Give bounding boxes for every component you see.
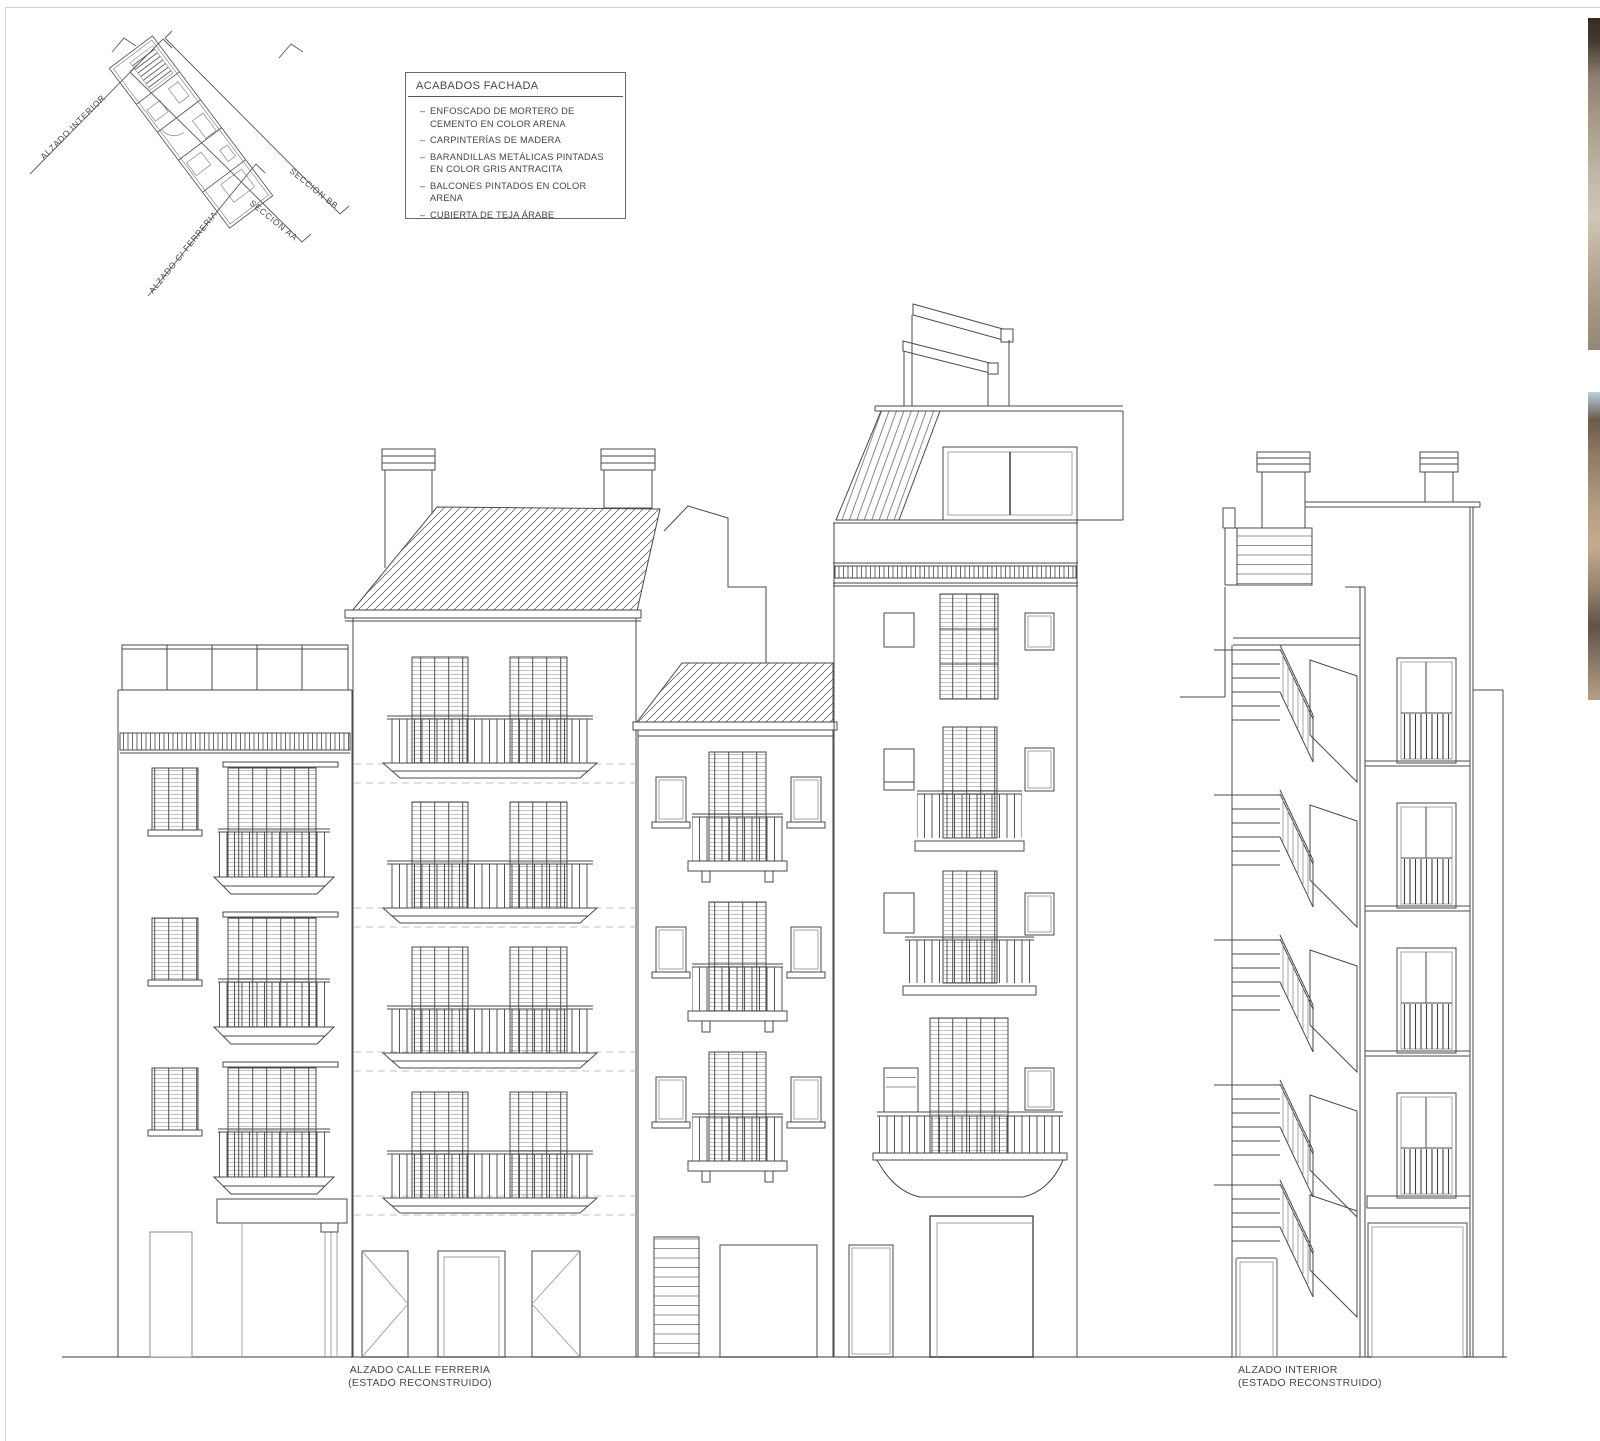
b4-cornice (833, 520, 1123, 586)
b4-floor-row (884, 871, 1054, 995)
b5-parapet-step (1223, 508, 1237, 528)
b2-floor-row (383, 1092, 597, 1213)
legend-item: BALCONES PINTADOS EN COLOR ARENA (430, 180, 619, 205)
legend-title: ACABADOS FACHADA (408, 73, 623, 97)
b2-ground-floor (362, 1251, 580, 1357)
b2-eave (345, 610, 641, 618)
b4-ground-floor (849, 1216, 1033, 1357)
b1-roof-parapet (122, 645, 348, 690)
b5-chimney-left (1257, 452, 1310, 528)
b5-stair-flight (1214, 645, 1357, 782)
b3-roof (637, 663, 833, 722)
b4-attic-glazing (943, 447, 1077, 520)
b2-chimney-right (601, 449, 655, 508)
b5-right-wall (1470, 507, 1473, 1357)
b5-louver-screen (1237, 528, 1312, 585)
b3-floor-row (652, 1052, 825, 1182)
building-5-interior-elevation (1180, 452, 1503, 1357)
building-4 (833, 304, 1123, 1357)
caption-calle-ferreria: ALZADO CALLE FERRERIA (ESTADO RECONSTRUI… (330, 1364, 510, 1390)
drawing-sheet: ALZADO INTERIOR ALZADO C/ FERRERIA SECCI… (0, 0, 1600, 1441)
caption-interior: ALZADO INTERIOR (ESTADO RECONSTRUIDO) (1238, 1364, 1458, 1390)
b1-floor-row (148, 762, 338, 894)
b1-floor-row (148, 1062, 338, 1194)
key-plan-label-seccion-bb: SECCION BB (288, 166, 340, 211)
b5-ground-floor (1236, 1223, 1467, 1357)
b3-floor-row (652, 902, 825, 1032)
b3-floor-row (652, 752, 825, 882)
b2-floor-row (383, 802, 597, 923)
key-plan-label-seccion-aa: SECCION AA (248, 198, 300, 243)
key-plan-label-alzado-interior: ALZADO INTERIOR (38, 92, 107, 161)
caption-line1: ALZADO CALLE FERRERIA (330, 1364, 510, 1377)
b2-floor-row (383, 657, 597, 778)
key-plan-section-lines (30, 31, 349, 296)
b2-floor-row (383, 947, 597, 1068)
key-plan: ALZADO INTERIOR ALZADO C/ FERRERIA SECCI… (30, 31, 349, 296)
b5-stair-flight (1214, 935, 1357, 1072)
b3-eave (633, 722, 837, 730)
b5-stair-flight (1214, 790, 1357, 927)
b3-ground-floor (654, 1237, 817, 1357)
legend-item: BARANDILLAS METÁLICAS PINTADAS EN COLOR … (430, 151, 619, 176)
b4-floor-row (884, 594, 1054, 699)
b1-cornice-band (120, 733, 350, 753)
b5-rear-annex (1473, 690, 1503, 1357)
building-3 (633, 663, 837, 1357)
b4-attic-sloped-panel (836, 411, 940, 520)
key-plan-label-alzado-calle: ALZADO C/ FERRERIA (147, 209, 219, 295)
legend-item: ENFOSCADO DE MORTERO DE CEMENTO EN COLOR… (430, 105, 619, 130)
b5-chimney-right (1420, 452, 1458, 502)
legend-item: CUBIERTA DE TEJA ÁRABE (430, 209, 619, 222)
elevation-drawing: ALZADO INTERIOR ALZADO C/ FERRERIA SECCI… (0, 0, 1600, 1441)
b5-balcony-door (1397, 1093, 1456, 1198)
b4-curved-balcony (873, 1112, 1067, 1197)
legend-item: CARPINTERÍAS DE MADERA (430, 134, 619, 147)
b2-party-wall (664, 506, 766, 663)
caption-line2: (ESTADO RECONSTRUIDO) (1238, 1377, 1458, 1390)
b5-balcony-door (1397, 803, 1456, 908)
building-1 (118, 645, 352, 1357)
b5-balcony-door (1397, 948, 1456, 1053)
caption-line1: ALZADO INTERIOR (1238, 1364, 1458, 1377)
building-2 (345, 449, 766, 1357)
caption-line2: (ESTADO RECONSTRUIDO) (330, 1377, 510, 1390)
b1-ground-floor (150, 1199, 347, 1357)
b4-roof-pergola (903, 304, 1013, 406)
b5-stair-wall (1345, 587, 1365, 1357)
b2-floor-dashed-lines (354, 764, 635, 1215)
b5-balcony-door (1397, 658, 1456, 763)
b1-floor-row (148, 912, 338, 1044)
facade-finishes-legend: ACABADOS FACHADA ENFOSCADO DE MORTERO DE… (405, 72, 626, 219)
b4-floor-row (884, 727, 1054, 851)
b5-roof-slab (1293, 502, 1480, 528)
